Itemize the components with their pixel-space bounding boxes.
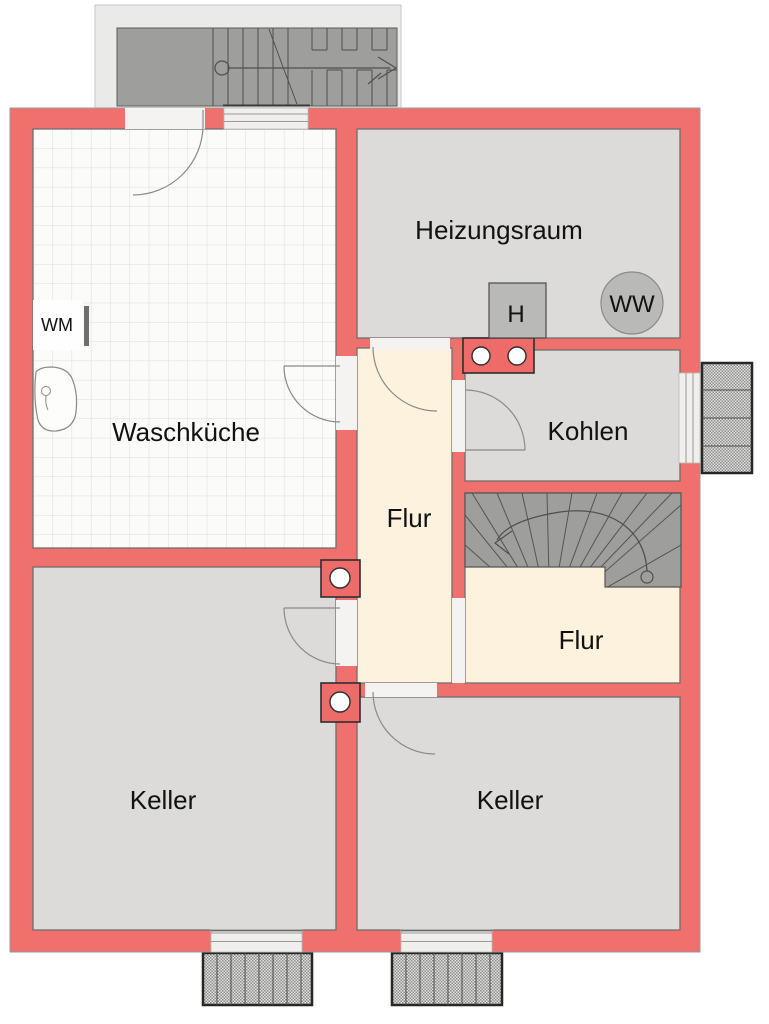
- label-flur-treppe: Flur: [559, 625, 604, 655]
- label-heizungsraum: Heizungsraum: [415, 215, 583, 245]
- room-keller-links-floor: [33, 567, 336, 930]
- window-kohlen-right: [679, 373, 700, 463]
- chimney-unten: [321, 683, 360, 722]
- opening-waschkueche-door: [336, 356, 357, 430]
- warm-water-boiler: WW: [601, 272, 663, 334]
- heater-label: H: [507, 301, 524, 328]
- chimney-mitte: [321, 560, 360, 597]
- light-well-right: [702, 363, 752, 473]
- floor-plan-page: H WW WM: [0, 0, 769, 1024]
- label-waschkueche: Waschküche: [112, 417, 260, 447]
- wash-basin: [35, 367, 77, 431]
- window-keller-rechts: [401, 930, 492, 952]
- warm-water-label: WW: [609, 291, 655, 318]
- opening-keller-links-door: [336, 600, 357, 666]
- flue-circle: [508, 347, 526, 365]
- flue-circle: [330, 568, 350, 588]
- heater-unit: H: [489, 283, 546, 338]
- opening-flur-passage: [452, 598, 465, 683]
- window-top: [224, 108, 308, 129]
- flue-circle: [330, 692, 350, 712]
- washing-machine-label: WM: [41, 315, 73, 335]
- label-kohlen: Kohlen: [548, 416, 629, 446]
- opening-kohlen-door: [452, 380, 465, 452]
- opening-keller-rechts-door: [365, 683, 437, 697]
- opening-entry-door: [125, 108, 205, 129]
- washing-machine: WM: [33, 300, 89, 350]
- light-well-bottom-left: [203, 953, 312, 1005]
- label-flur-mitte: Flur: [387, 503, 432, 533]
- label-keller-links: Keller: [130, 785, 197, 815]
- label-keller-rechts: Keller: [477, 785, 544, 815]
- chimney-heizung: [463, 338, 534, 373]
- flue-circle: [472, 347, 490, 365]
- light-well-bottom-right: [392, 953, 502, 1005]
- floor-plan-canvas: H WW WM: [0, 0, 769, 1024]
- opening-heizungsraum-door: [370, 338, 450, 350]
- exterior-staircase: [95, 5, 401, 111]
- stair-flight: [117, 28, 397, 106]
- window-keller-links: [211, 930, 302, 952]
